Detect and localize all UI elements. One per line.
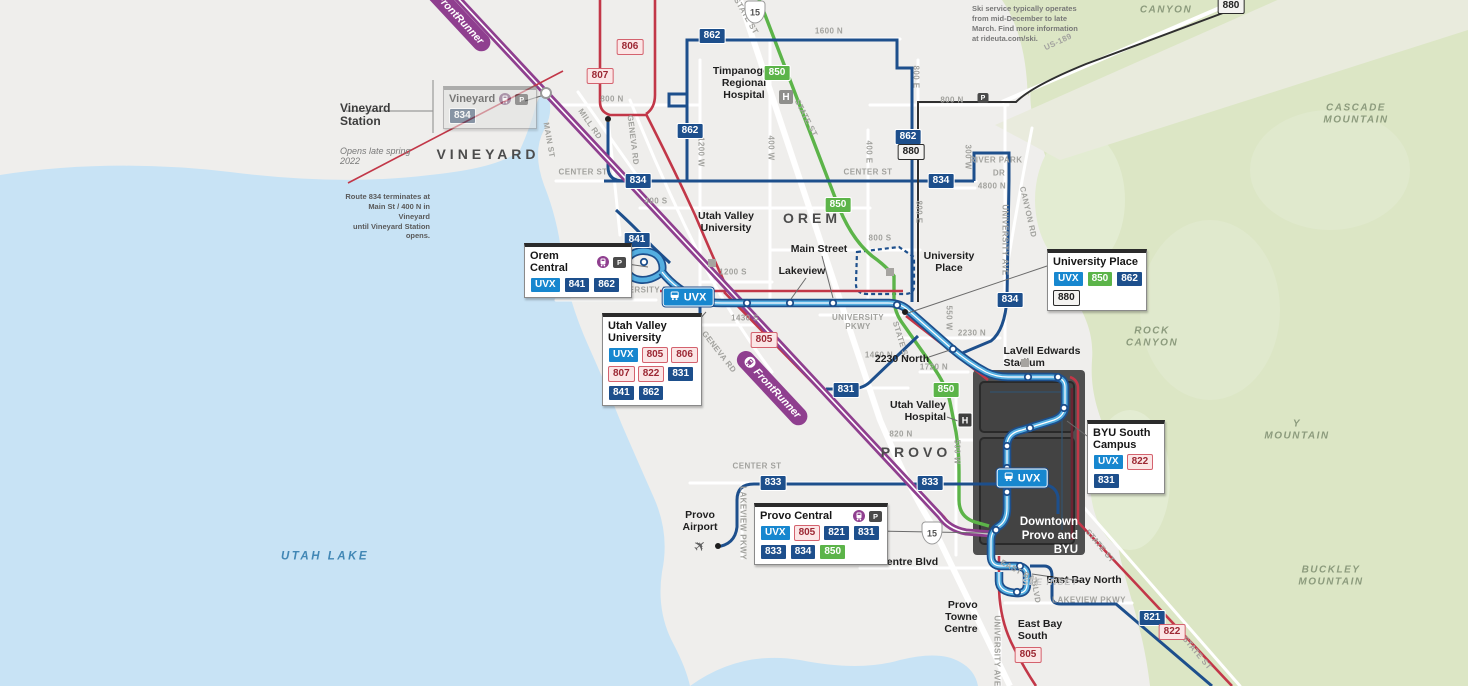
uvx-line-badge: UVX <box>663 288 714 307</box>
map-label: MILL RD <box>576 107 604 141</box>
map-label: 800 E <box>911 66 920 89</box>
inset-title: Downtown Provo and BYU <box>998 516 1078 557</box>
route-badge-862: 862 <box>1116 271 1143 287</box>
map-label: CENTER ST <box>844 167 893 176</box>
station-box-utah-valley-university: Utah Valley University UVX80580680782283… <box>602 313 702 406</box>
uvx-label: UVX <box>684 291 707 303</box>
terminus-dot <box>605 116 611 122</box>
route-badge-row: UVX850862 <box>1053 271 1141 287</box>
route-badge-833: 833 <box>917 475 944 491</box>
geo-label-y-mountain: Y MOUNTAIN <box>1264 419 1329 442</box>
map-label: 2230 N <box>958 328 986 337</box>
route-badge-831: 831 <box>833 382 860 398</box>
route-badge-806: 806 <box>671 347 698 363</box>
map-label: 1200 S <box>719 267 747 276</box>
map-label: 500 W <box>952 439 961 464</box>
route-badge-822: 822 <box>1159 624 1186 640</box>
transit-map: VINEYARDOREMPROVOUTAH LAKECANYONCASCADE … <box>0 0 1468 686</box>
stop-label-lakeview: Lakeview <box>779 265 826 277</box>
station-title: Provo Central <box>760 510 832 522</box>
route-badge-850: 850 <box>933 382 960 398</box>
city-label-provo: PROVO <box>881 444 952 460</box>
frontrunner-label: FrontRunner <box>434 0 486 47</box>
frontrunner-icon <box>853 510 865 522</box>
map-label: GENEVA RD <box>700 329 738 374</box>
map-label: 550 W <box>944 305 953 330</box>
map-label: 800 N <box>600 94 623 103</box>
stop-label-2230-north: 2230 North <box>875 353 929 365</box>
map-label: MAIN ST <box>541 122 556 159</box>
future-station-circle <box>540 87 552 99</box>
map-label: 1720 N <box>920 362 948 371</box>
geo-label-rock-canyon: ROCK CANYON <box>1126 326 1178 349</box>
route-badge-805: 805 <box>794 525 821 541</box>
bus-icon <box>1004 472 1014 485</box>
route-badge-862: 862 <box>638 385 665 401</box>
poi-label-provo-towne-centre: Provo Towne Centre <box>944 599 977 635</box>
route-badge-841: 841 <box>608 385 635 401</box>
route-badge-833: 833 <box>760 475 787 491</box>
route-badge-UVX: UVX <box>530 277 561 293</box>
map-label: 800 S <box>869 233 892 242</box>
poi-label-uvu: Utah Valley University <box>698 210 754 234</box>
geo-label-canyon: CANYON <box>1140 4 1192 16</box>
park-and-ride-icon: P <box>978 93 989 103</box>
map-label: 400 S <box>645 196 668 205</box>
route-badge-806: 806 <box>617 39 644 55</box>
map-label: 400 E <box>864 141 873 164</box>
map-label: 300 W <box>963 144 972 169</box>
route-badge-841: 841 <box>564 277 591 293</box>
hospital-icon-timpanogos: H <box>779 90 793 104</box>
map-label: GENEVA RD <box>625 114 640 165</box>
route-badge-row: 833834850 <box>760 544 882 560</box>
poi-label-university-place: University Place <box>924 250 975 274</box>
route-badge-row: UVX841862 <box>530 277 626 293</box>
route-badge-row: 834 <box>449 108 531 124</box>
map-label: STATE ST <box>891 320 912 362</box>
map-label: 1200 W <box>696 137 705 167</box>
inset-caption: Downtown Provo and BYU SEE INSET <box>998 498 1078 605</box>
route-badge-UVX: UVX <box>760 525 791 541</box>
map-label: DR <box>993 168 1005 177</box>
route-badge-UVX: UVX <box>1053 271 1084 287</box>
stop-dot <box>902 309 908 315</box>
stop-label-main-street: Main Street <box>791 243 848 255</box>
route-badge-850: 850 <box>819 544 846 560</box>
station-title: Orem Central <box>530 250 593 274</box>
route-badge-880: 880 <box>1218 0 1245 14</box>
route-badge-row: 880 <box>1053 290 1141 306</box>
map-label: 800 E <box>914 201 923 224</box>
station-title: BYU South Campus <box>1093 427 1150 451</box>
map-label: RIVER PARK <box>970 155 1023 164</box>
route-badge-805: 805 <box>1015 647 1042 663</box>
route-badge-807: 807 <box>608 366 635 382</box>
airplane-icon: ✈ <box>689 535 710 557</box>
poi-square-uvu <box>708 259 716 267</box>
route-badge-831: 831 <box>667 366 694 382</box>
station-title: Utah Valley University <box>608 320 667 344</box>
uvx-label: UVX <box>1018 472 1041 484</box>
route-badge-834: 834 <box>928 173 955 189</box>
frontrunner-icon <box>597 256 609 268</box>
frontrunner-label: FrontRunner <box>751 366 803 421</box>
map-label: CENTER ST <box>733 461 782 470</box>
poi-square-stadium <box>1021 359 1029 367</box>
city-label-vineyard: VINEYARD <box>436 146 539 162</box>
interstate-15-shield: 15 <box>745 1 766 24</box>
route-badge-805: 805 <box>751 332 778 348</box>
map-label: 400 W <box>766 135 775 160</box>
map-label: 800 N <box>940 95 963 104</box>
route-badge-833: 833 <box>760 544 787 560</box>
route-badge-831: 831 <box>1093 473 1120 489</box>
park-and-ride-icon: P <box>515 94 528 105</box>
route-badge-862: 862 <box>677 123 704 139</box>
route-badge-row: UVX822 <box>1093 454 1159 470</box>
stop-label-east-bay-south: East Bay South <box>1018 618 1062 642</box>
route-badge-834: 834 <box>790 544 817 560</box>
route-badge-834: 834 <box>997 292 1024 308</box>
route-badge-row: 841862 <box>608 385 696 401</box>
uvx-line-badge: UVX <box>997 469 1048 488</box>
poi-label-provo-airport: Provo Airport <box>683 509 718 533</box>
route-badge-850: 850 <box>1087 271 1114 287</box>
station-box-university-place: University Place UVX850862880 <box>1047 249 1147 311</box>
map-label: STATE ST <box>1083 527 1116 564</box>
map-overlay-layer: VINEYARDOREMPROVOUTAH LAKECANYONCASCADE … <box>0 0 1468 686</box>
map-label: 1460 N <box>865 350 893 359</box>
route-badge-834: 834 <box>625 173 652 189</box>
route-badge-UVX: UVX <box>608 347 639 363</box>
poi-label-lavell-edwards-stadium: LaVell Edwards Stadium <box>1003 345 1080 369</box>
route-badge-831: 831 <box>853 525 880 541</box>
map-label: STATE ST <box>1180 634 1213 671</box>
map-label: 820 N <box>889 429 912 438</box>
station-title: University Place <box>1053 256 1138 268</box>
bus-icon <box>670 291 680 304</box>
route-badge-row: UVX805806 <box>608 347 696 363</box>
map-label: UNIVERSITY AVE <box>992 615 1001 686</box>
route-badge-862: 862 <box>895 129 922 145</box>
station-box-orem-central: Orem Central P UVX841862 <box>524 243 632 298</box>
map-label: US-189 <box>1043 32 1074 53</box>
route-badge-850: 850 <box>825 197 852 213</box>
poi-label-utah-valley-hospital: Utah Valley Hospital <box>890 399 946 423</box>
inset-see-note: SEE INSET <box>998 577 1078 587</box>
geo-label-buckley-mountain: BUCKLEY MOUNTAIN <box>1298 565 1363 588</box>
station-title: Vineyard <box>449 93 495 105</box>
map-label: LAKEVIEW PKWY <box>738 486 747 560</box>
map-label: 4800 N <box>978 181 1006 190</box>
map-label: UNIVERSITY PKWY <box>832 313 884 331</box>
airport-stop-dot <box>715 543 721 549</box>
station-box-byu-south-campus: BYU South Campus UVX822831 <box>1087 420 1165 494</box>
station-box-provo-central: Provo Central P UVX805821831833834850 <box>754 503 888 565</box>
route-badge-862: 862 <box>699 28 726 44</box>
route-badge-805: 805 <box>642 347 669 363</box>
map-label: UNIVERSITY AVE <box>1000 204 1009 275</box>
geo-label-cascade-mountain: CASCADE MOUNTAIN <box>1323 103 1388 126</box>
route-badge-UVX: UVX <box>1093 454 1124 470</box>
frontrunner-line-badge: FrontRunner <box>733 347 811 428</box>
map-label: 1430 S <box>731 313 759 322</box>
route-badge-834: 834 <box>449 108 476 124</box>
route-badge-850: 850 <box>764 65 791 81</box>
map-label: CENTER ST <box>559 167 608 176</box>
frontrunner-icon <box>499 93 511 105</box>
hospital-icon-utah-valley: H <box>958 413 973 428</box>
route-badge-880: 880 <box>1053 290 1080 306</box>
geo-label-utah-lake: UTAH LAKE <box>281 550 369 563</box>
route-badge-row: 807822831 <box>608 366 696 382</box>
map-label: CANYON RD <box>1018 186 1039 239</box>
station-box-vineyard: Vineyard P 834 <box>443 86 537 129</box>
route-badge-822: 822 <box>638 366 665 382</box>
route-badge-880: 880 <box>898 144 925 160</box>
park-and-ride-icon: P <box>613 257 626 268</box>
route-badge-row: UVX805821831 <box>760 525 882 541</box>
map-label: 1600 N <box>815 26 843 35</box>
poi-square-university-place <box>886 268 894 276</box>
frontrunner-line-badge: FrontRunner <box>416 0 494 55</box>
interstate-15-shield: 15 <box>922 522 943 545</box>
route-badge-821: 821 <box>823 525 850 541</box>
route-badge-row: 831 <box>1093 473 1159 489</box>
park-and-ride-icon: P <box>869 511 882 522</box>
route-badge-807: 807 <box>587 68 614 84</box>
route-badge-862: 862 <box>593 277 620 293</box>
map-label: STATE ST <box>793 98 820 138</box>
route-badge-822: 822 <box>1127 454 1154 470</box>
